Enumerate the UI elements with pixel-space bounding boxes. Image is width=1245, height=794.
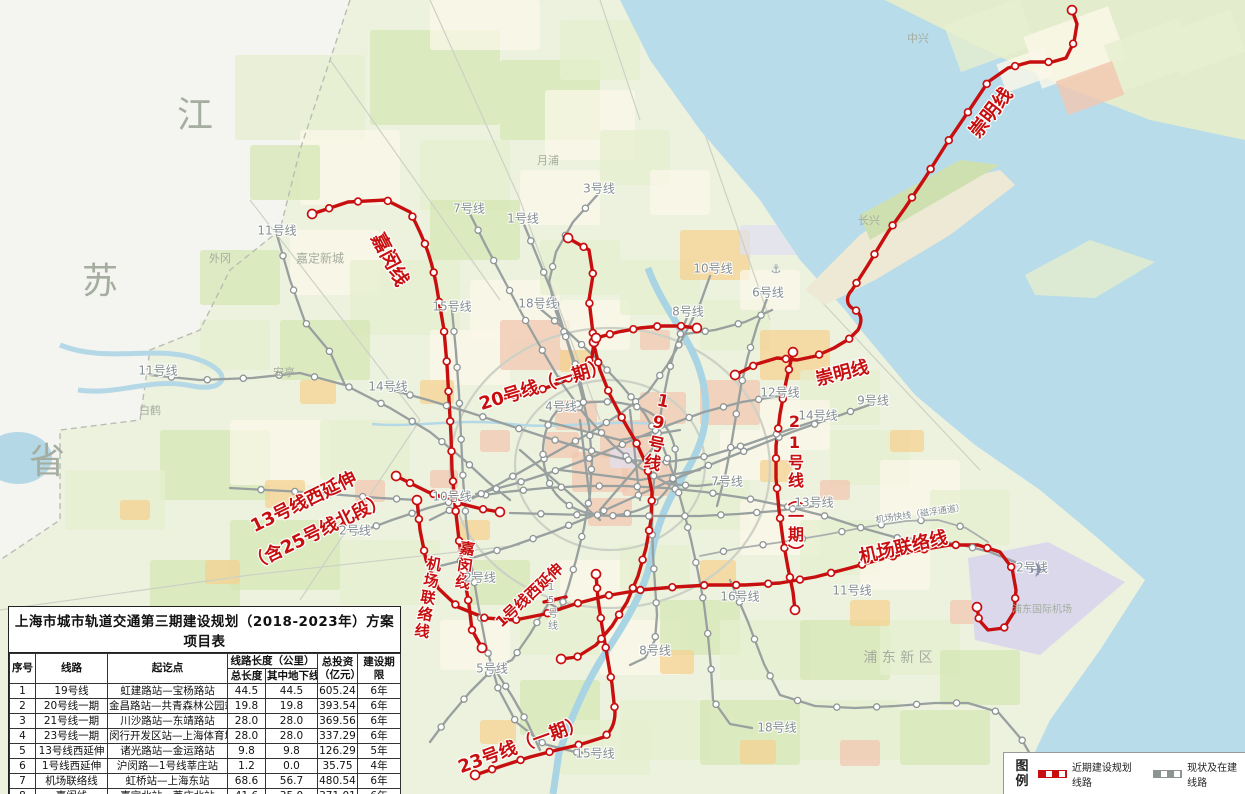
cell-total: 41.6 [228, 789, 266, 794]
metro-plan-map-page: 嘉闵线崇明线崇明线20号线（一期）19号线21号线（一期）机场联络线嘉闵线机场联… [0, 0, 1245, 794]
cell-underground: 44.5 [266, 684, 318, 699]
cell-line: 20号线一期 [36, 699, 108, 714]
cell-underground: 56.7 [266, 774, 318, 789]
cell-no: 5 [10, 744, 36, 759]
cell-line: 21号线一期 [36, 714, 108, 729]
cell-endpoints: 闵行开发区站—上海体育场站 [108, 729, 228, 744]
cell-total: 9.8 [228, 744, 266, 759]
table-body: 119号线虹建路站—宝杨路站44.544.5605.246年220号线一期金昌路… [10, 684, 401, 794]
legend-existing-line-label: 现状及在建线路 [1187, 759, 1245, 789]
cell-investment: 393.54 [318, 699, 358, 714]
cell-total: 28.0 [228, 729, 266, 744]
table-title: 上海市城市轨道交通第三期建设规划（2018-2023年）方案项目表 [9, 607, 400, 653]
cell-period: 5年 [358, 744, 401, 759]
cell-total: 1.2 [228, 759, 266, 774]
cell-endpoints: 川沙路站—东靖路站 [108, 714, 228, 729]
cell-investment: 480.54 [318, 774, 358, 789]
cell-endpoints: 沪闵路—1号线莘庄站 [108, 759, 228, 774]
col-header-total-length: 总长度 [228, 669, 266, 684]
legend-existing-line-symbol [1153, 770, 1182, 778]
cell-endpoints: 虹桥站—上海东站 [108, 774, 228, 789]
cell-endpoints: 金昌路站—共青森林公园站 [108, 699, 228, 714]
cell-no: 4 [10, 729, 36, 744]
cell-underground: 19.8 [266, 699, 318, 714]
legend-planned-line: 近期建设规划线路 [1038, 759, 1139, 789]
table-header: 序号 线路 起讫点 线路长度（公里） 总投资（亿元） 建设期限 总长度 其中地下… [10, 654, 401, 684]
cell-investment: 35.75 [318, 759, 358, 774]
cell-underground: 28.0 [266, 714, 318, 729]
legend-existing-line: 现状及在建线路 [1153, 759, 1245, 789]
cell-total: 68.6 [228, 774, 266, 789]
project-table: 上海市城市轨道交通第三期建设规划（2018-2023年）方案项目表 序号 线路 … [8, 606, 401, 794]
legend-planned-line-label: 近期建设规划线路 [1072, 759, 1139, 789]
cell-line: 嘉闵线 [36, 789, 108, 794]
cell-no: 3 [10, 714, 36, 729]
table-row: 7机场联络线虹桥站—上海东站68.656.7480.546年 [10, 774, 401, 789]
cell-line: 19号线 [36, 684, 108, 699]
cell-period: 6年 [358, 789, 401, 794]
legend-title: 图例 [1014, 759, 1030, 789]
map-legend: 图例 近期建设规划线路现状及在建线路 [1003, 752, 1245, 794]
table-row: 8嘉闵线嘉定北站—莘庄北站41.635.0371.016年 [10, 789, 401, 794]
col-header-line: 线路 [36, 654, 108, 684]
legend-planned-line-symbol [1038, 770, 1067, 778]
cell-period: 6年 [358, 699, 401, 714]
cell-total: 28.0 [228, 714, 266, 729]
cell-line: 23号线一期 [36, 729, 108, 744]
cell-underground: 35.0 [266, 789, 318, 794]
cell-investment: 605.24 [318, 684, 358, 699]
cell-underground: 28.0 [266, 729, 318, 744]
cell-line: 1号线西延伸 [36, 759, 108, 774]
cell-total: 19.8 [228, 699, 266, 714]
col-header-underground: 其中地下线 [266, 669, 318, 684]
cell-endpoints: 虹建路站—宝杨路站 [108, 684, 228, 699]
col-header-length-group: 线路长度（公里） [228, 654, 318, 669]
cell-investment: 337.29 [318, 729, 358, 744]
cell-underground: 9.8 [266, 744, 318, 759]
cell-period: 4年 [358, 759, 401, 774]
table-row: 119号线虹建路站—宝杨路站44.544.5605.246年 [10, 684, 401, 699]
cell-endpoints: 嘉定北站—莘庄北站 [108, 789, 228, 794]
project-table-grid: 序号 线路 起讫点 线路长度（公里） 总投资（亿元） 建设期限 总长度 其中地下… [9, 653, 401, 794]
cell-line: 机场联络线 [36, 774, 108, 789]
col-header-index: 序号 [10, 654, 36, 684]
cell-investment: 126.29 [318, 744, 358, 759]
col-header-investment: 总投资（亿元） [318, 654, 358, 684]
cell-period: 6年 [358, 774, 401, 789]
table-row: 513号线西延伸诸光路站—金运路站9.89.8126.295年 [10, 744, 401, 759]
table-row: 321号线一期川沙路站—东靖路站28.028.0369.566年 [10, 714, 401, 729]
cell-period: 6年 [358, 684, 401, 699]
legend-items: 近期建设规划线路现状及在建线路 [1038, 759, 1245, 789]
col-header-endpoints: 起讫点 [108, 654, 228, 684]
cell-no: 8 [10, 789, 36, 794]
table-row: 423号线一期闵行开发区站—上海体育场站28.028.0337.296年 [10, 729, 401, 744]
col-header-period: 建设期限 [358, 654, 401, 684]
cell-period: 6年 [358, 714, 401, 729]
cell-endpoints: 诸光路站—金运路站 [108, 744, 228, 759]
cell-total: 44.5 [228, 684, 266, 699]
cell-investment: 369.56 [318, 714, 358, 729]
table-row: 220号线一期金昌路站—共青森林公园站19.819.8393.546年 [10, 699, 401, 714]
cell-investment: 371.01 [318, 789, 358, 794]
cell-no: 6 [10, 759, 36, 774]
cell-period: 6年 [358, 729, 401, 744]
cell-no: 1 [10, 684, 36, 699]
cell-no: 7 [10, 774, 36, 789]
cell-no: 2 [10, 699, 36, 714]
cell-line: 13号线西延伸 [36, 744, 108, 759]
cell-underground: 0.0 [266, 759, 318, 774]
table-row: 61号线西延伸沪闵路—1号线莘庄站1.20.035.754年 [10, 759, 401, 774]
